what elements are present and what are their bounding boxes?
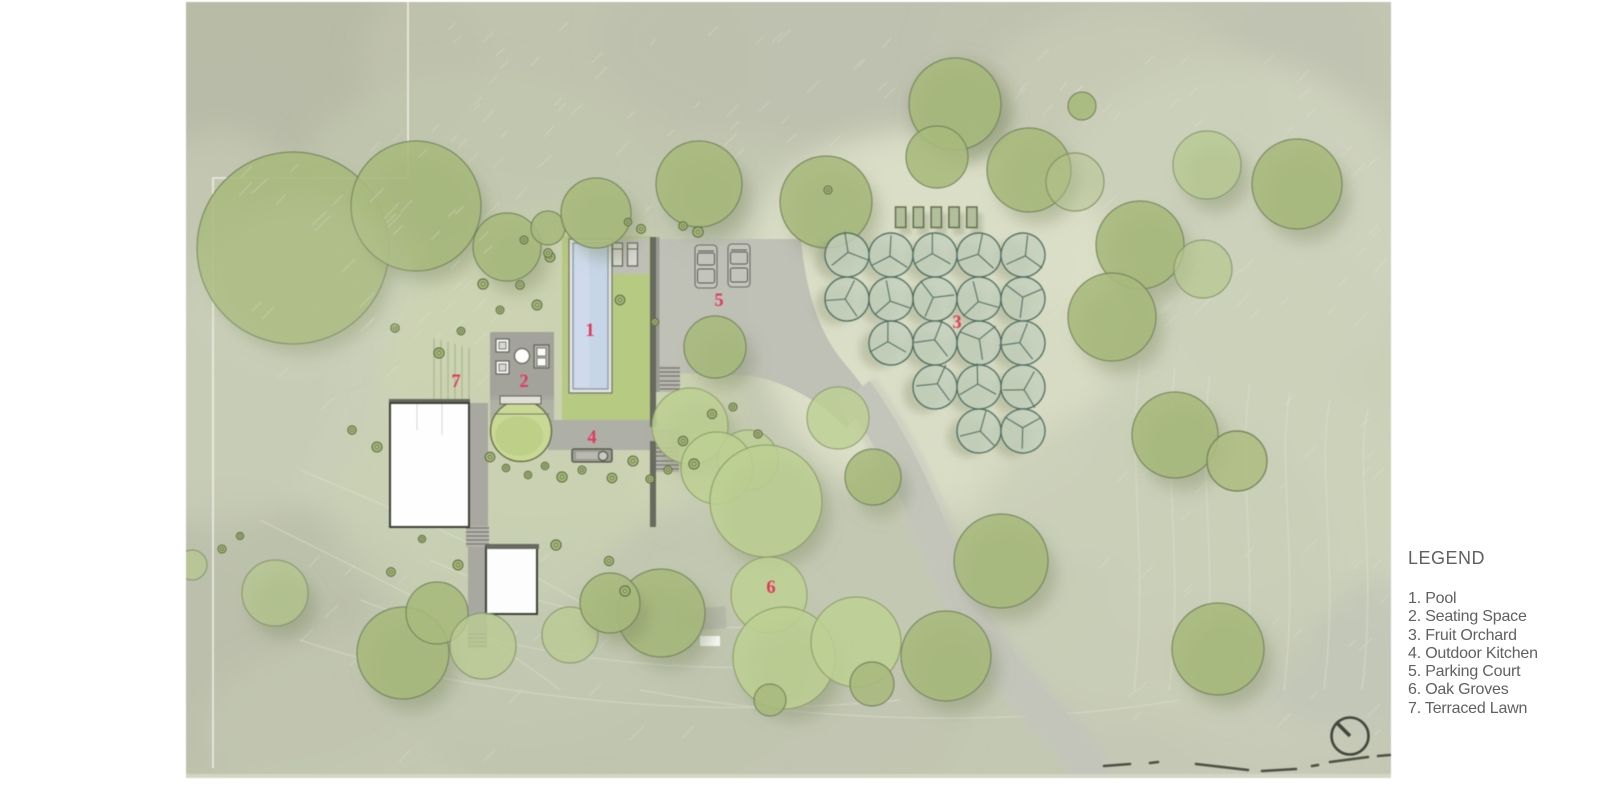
svg-text:4: 4	[587, 428, 596, 448]
svg-text:2: 2	[519, 372, 528, 392]
svg-text:3: 3	[952, 313, 961, 333]
svg-text:6: 6	[766, 578, 775, 598]
svg-text:1: 1	[585, 321, 594, 341]
svg-text:7: 7	[451, 372, 460, 392]
svg-text:5: 5	[714, 291, 723, 311]
